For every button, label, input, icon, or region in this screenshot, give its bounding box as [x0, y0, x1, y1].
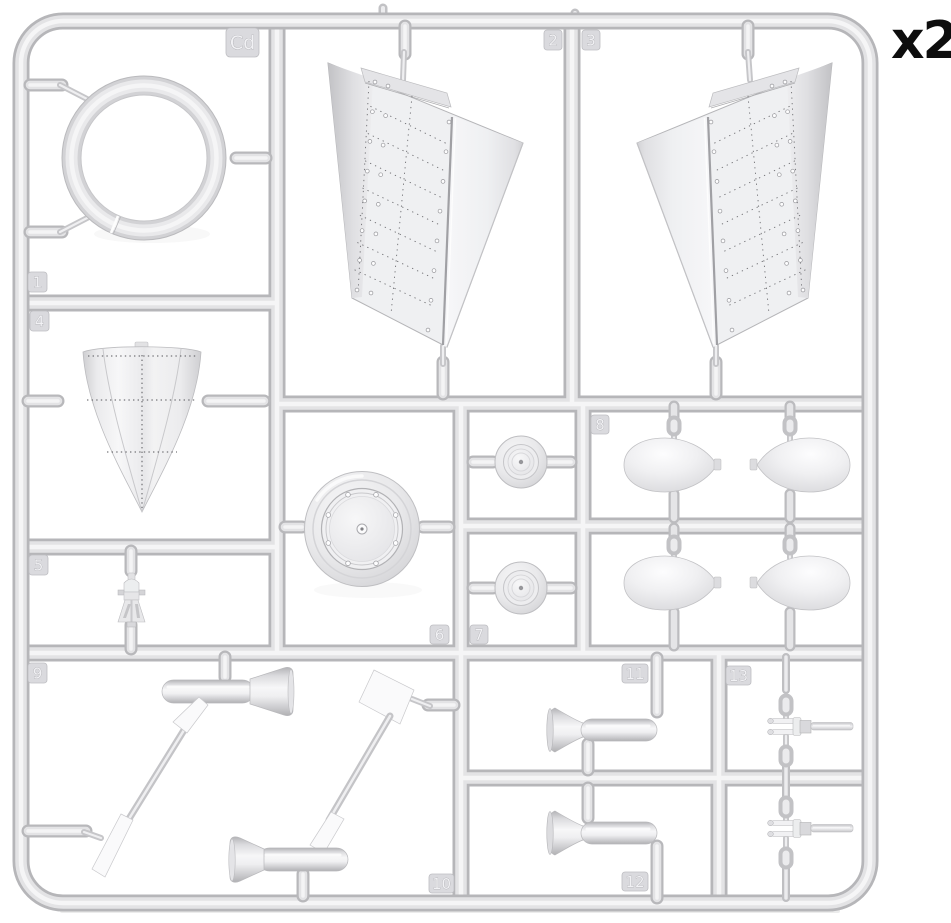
svg-text:6: 6 [435, 626, 445, 644]
svg-text:12: 12 [625, 873, 644, 891]
part-label-13: 13 [726, 666, 751, 685]
svg-text:9: 9 [33, 665, 43, 683]
part-4-cone [83, 342, 201, 512]
part-label-6: 6 [430, 625, 449, 644]
part-label-5: 5 [29, 555, 48, 575]
svg-text:11: 11 [625, 665, 644, 683]
part-label-8: 8 [591, 415, 609, 434]
part-5-fitting [118, 573, 145, 627]
part-2-panel [328, 63, 523, 347]
svg-text:8: 8 [595, 416, 605, 434]
part-label-7: 7 [470, 625, 488, 644]
svg-text:3: 3 [586, 32, 596, 50]
part-9-venturi-and-antenna [92, 667, 294, 877]
sprue-illustration: Cd 1 2 3 4 5 6 7 8 9 10 11 [0, 0, 951, 923]
sprue-diagram-page: Cd 1 2 3 4 5 6 7 8 9 10 11 [0, 0, 951, 923]
svg-text:1: 1 [33, 274, 43, 292]
svg-text:4: 4 [35, 313, 45, 331]
svg-text:13: 13 [729, 667, 748, 685]
part-11-horn [547, 708, 657, 752]
part-label-9: 9 [28, 663, 47, 683]
part-3-panel [637, 63, 832, 347]
sprue-code-tag: Cd [226, 28, 259, 57]
part-label-11: 11 [622, 664, 648, 683]
part-label-10: 10 [429, 874, 454, 893]
part-1-ring [62, 76, 226, 240]
sprue-code-text: Cd [230, 32, 255, 54]
svg-text:7: 7 [474, 626, 484, 644]
quantity-multiplier-label: x2 [891, 11, 951, 71]
part-label-2: 2 [544, 30, 562, 50]
part-label-4: 4 [30, 311, 49, 331]
part-label-3: 3 [582, 30, 600, 50]
part-label-12: 12 [622, 872, 648, 891]
svg-text:2: 2 [548, 32, 558, 50]
svg-text:5: 5 [34, 557, 44, 575]
part-12-horn [547, 811, 657, 855]
part-label-1: 1 [28, 272, 47, 292]
part-6-wheel [305, 472, 420, 587]
svg-text:10: 10 [432, 875, 451, 893]
